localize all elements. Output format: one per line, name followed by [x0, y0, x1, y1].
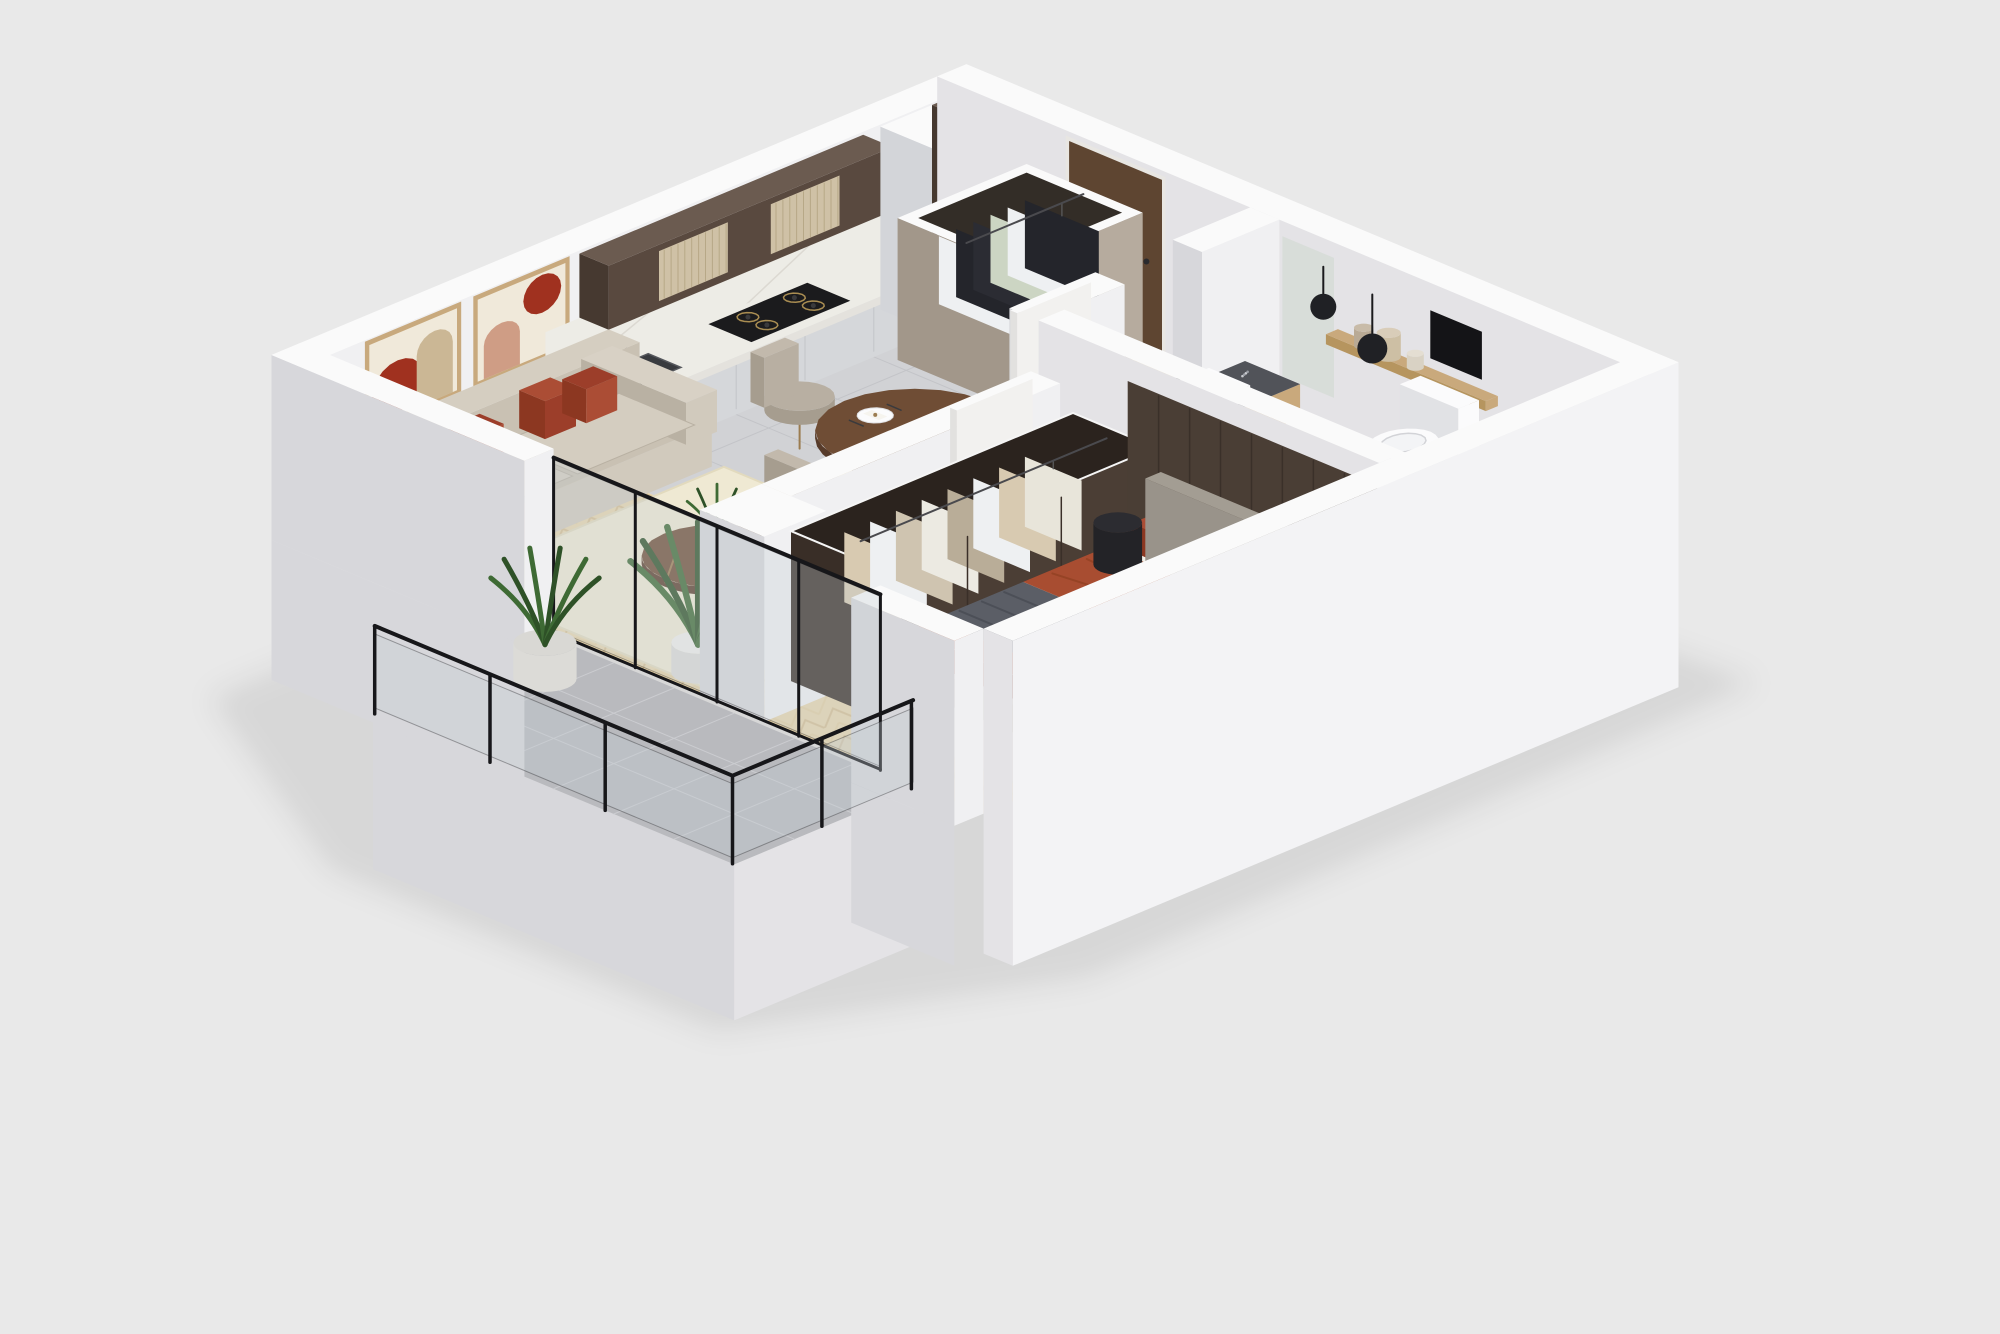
upper-cabinets: [579, 254, 608, 330]
glass-panel: [635, 494, 717, 698]
nightstand: [1093, 512, 1142, 532]
glass-panel: [717, 528, 799, 732]
page: { "scene": { "description": "isometric-3…: [0, 0, 2000, 1334]
floorplan-render: [0, 0, 2000, 1334]
canvas-background: [0, 0, 2000, 1334]
vase: [1354, 324, 1373, 332]
